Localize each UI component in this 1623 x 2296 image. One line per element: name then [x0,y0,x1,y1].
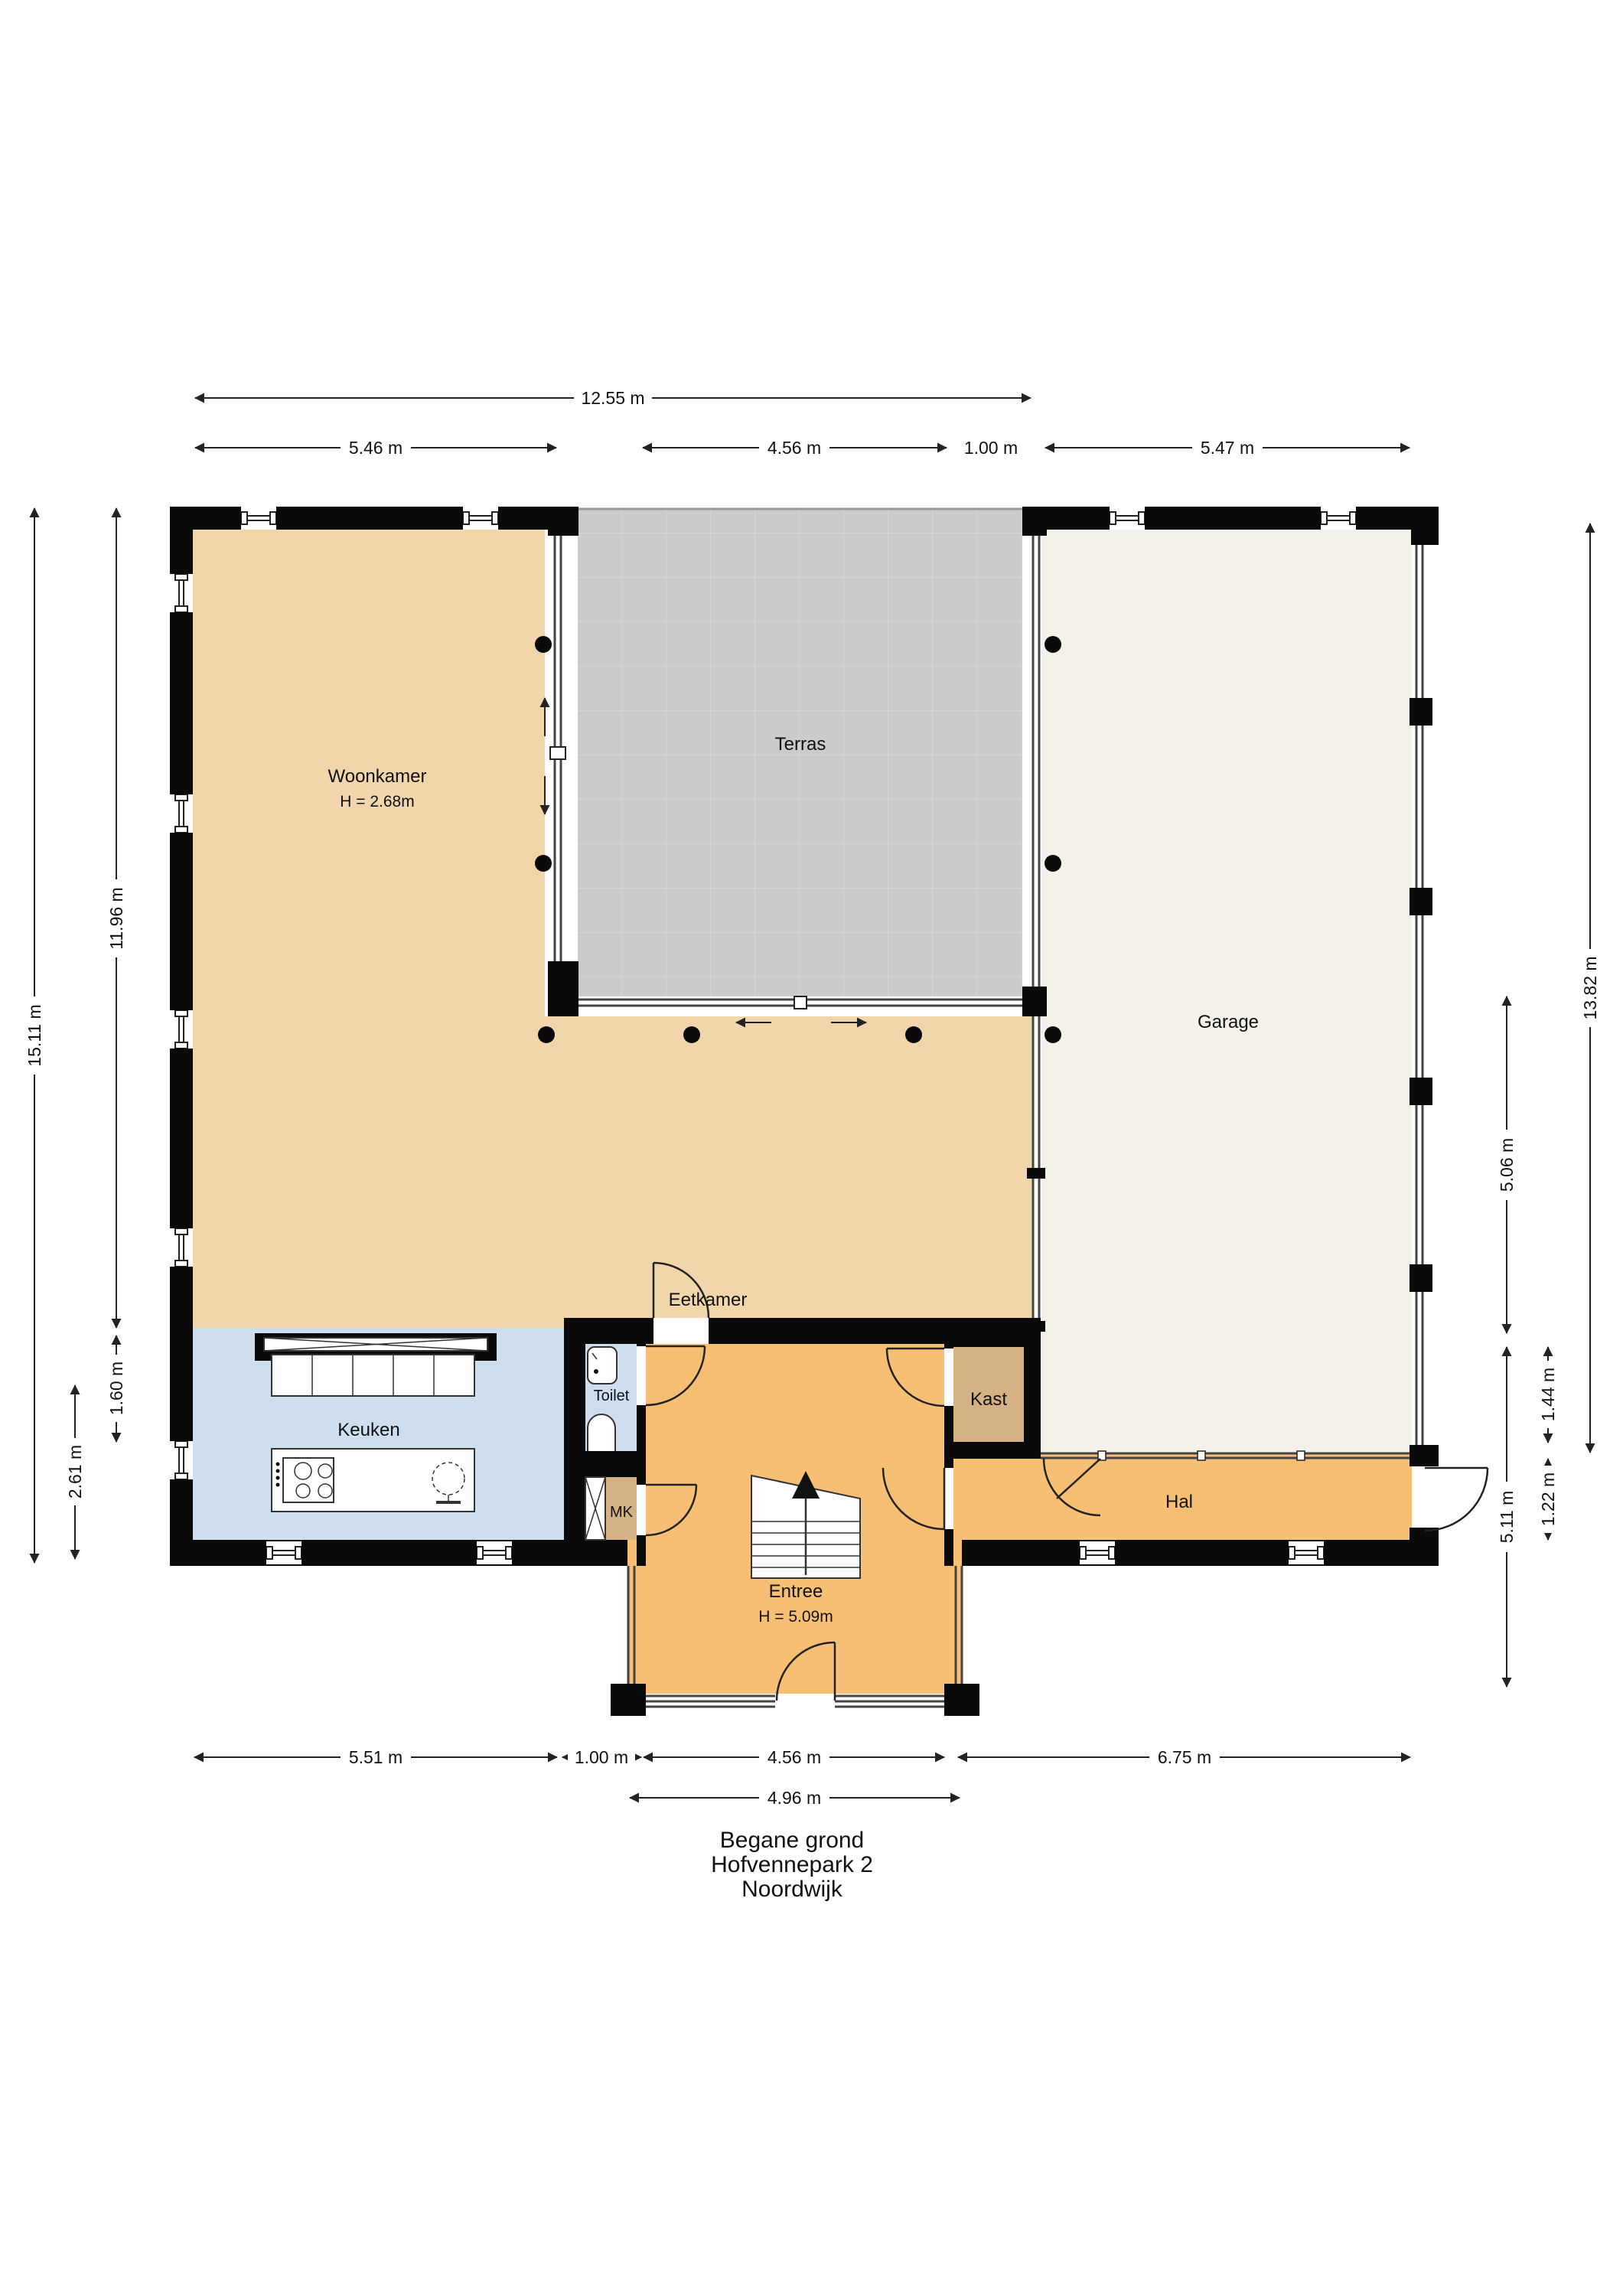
dim-left-keuken: 2.61 m [64,1385,86,1559]
svg-text:1.60 m: 1.60 m [106,1362,126,1415]
svg-text:5.06 m: 5.06 m [1497,1138,1517,1192]
knob [276,1463,280,1466]
title-city: Noordwijk [741,1877,843,1902]
wall-entree-west [637,1318,646,1346]
wall-entree-east [944,1529,953,1566]
label-garage: Garage [1198,1012,1259,1032]
column-dot [535,855,552,872]
label-eetkamer: Eetkamer [669,1290,748,1310]
label-woonkamer: Woonkamer [328,766,427,787]
dim-left-living: 11.96 m [105,508,128,1328]
glass-mullion [1027,1168,1045,1179]
label-entree-height: H = 5.09m [758,1608,833,1626]
dim-right-garage: 13.82 m [1579,523,1602,1453]
knob [276,1483,280,1487]
window-west [170,1228,193,1267]
wall-north-left [170,507,578,530]
title-address: Hofvennepark 2 [711,1852,873,1877]
dim-right-lower: 5.11 m [1495,1347,1518,1687]
washbasin [588,1347,617,1384]
window-south [1080,1541,1115,1564]
wall-pier [1410,1078,1432,1105]
knob [276,1476,280,1480]
floorplan-drawing: Woonkamer H = 2.68m Terras Garage Eetkam… [0,0,1623,2296]
window-north [463,507,498,530]
window-north [241,507,276,530]
wall-band-entree-top [709,1318,944,1344]
wall-band-kast-top [944,1318,1041,1347]
dim-right-kast: 1.44 m [1537,1347,1559,1443]
svg-text:13.82 m: 13.82 m [1580,956,1600,1019]
label-toilet: Toilet [594,1388,630,1404]
dim-top-gap: 1.00 m [957,436,1025,459]
svg-text:15.11 m: 15.11 m [24,1004,44,1066]
dim-top-terras: 4.56 m [643,436,947,459]
svg-text:5.11 m: 5.11 m [1497,1491,1517,1544]
dim-top-garage: 5.47 m [1045,436,1410,459]
label-woonkamer-height: H = 2.68m [340,793,414,810]
svg-text:1.22 m: 1.22 m [1538,1473,1558,1526]
wall-entree-east [944,1318,953,1349]
svg-text:4.96 m: 4.96 m [768,1788,821,1808]
wall-post-entree-sw [611,1684,646,1716]
wall-post-entree-se [944,1684,979,1716]
wall-post-terras-nw [548,507,578,536]
wall-post-terras-se [1022,987,1047,1016]
window-south [266,1541,301,1564]
title-block: Begane grond Hofvennepark 2 Noordwijk [711,1828,873,1902]
kitchen-island [272,1449,474,1512]
wall-kast-south [944,1442,1041,1459]
svg-text:12.55 m: 12.55 m [581,388,644,408]
window-west [170,574,193,612]
kitchen-counter [264,1338,487,1396]
dim-top-overall: 12.55 m [195,386,1031,409]
wall-pier [1410,1264,1432,1292]
svg-text:6.75 m: 6.75 m [1158,1747,1211,1767]
column-dot [1045,1026,1061,1043]
svg-text:11.96 m: 11.96 m [106,887,126,949]
wall-entree-west [637,1405,646,1485]
label-kast: Kast [970,1389,1007,1410]
dim-bottom-entree-outer: 4.96 m [630,1786,960,1809]
wall-pier [1410,888,1432,915]
label-keuken: Keuken [337,1420,399,1440]
dim-top-woonkamer: 5.46 m [195,436,556,459]
svg-text:5.51 m: 5.51 m [349,1747,402,1767]
label-terras: Terras [775,734,826,755]
column-dot [1045,636,1061,653]
wall-north-right [1022,507,1439,530]
column-dot [535,636,552,653]
dim-bottom-entree: 4.56 m [644,1746,944,1769]
svg-text:4.56 m: 4.56 m [768,1747,821,1767]
svg-text:1.00 m: 1.00 m [964,438,1018,458]
wall-hal-door-jamb [1410,1445,1439,1466]
column-dot [905,1026,922,1043]
title-floor: Begane grond [720,1828,865,1853]
mk-shaft [585,1477,605,1540]
wall-entree-west [637,1535,646,1566]
column-dot [1045,855,1061,872]
knob [276,1469,280,1473]
dim-bottom-gap: 1.00 m [562,1746,641,1769]
wall-keuken-toilet [564,1344,585,1566]
column-dot [683,1026,700,1043]
dim-bottom-hal: 6.75 m [958,1746,1410,1769]
dim-right-hal: 1.22 m [1537,1459,1559,1540]
dim-right-upper: 5.06 m [1495,996,1518,1333]
glass-junction [1198,1451,1205,1460]
floorplan-page: Woonkamer H = 2.68m Terras Garage Eetkam… [0,0,1623,2296]
wall-south-right [962,1540,1439,1566]
svg-text:5.46 m: 5.46 m [349,438,402,458]
svg-text:4.56 m: 4.56 m [768,438,821,458]
wall-south-left [170,1540,627,1566]
wall-post-terras-sw [548,961,578,1016]
label-entree: Entree [769,1581,823,1602]
svg-text:1.00 m: 1.00 m [575,1747,628,1767]
svg-text:2.61 m: 2.61 m [65,1445,85,1499]
room-garage-floor [1041,530,1412,1453]
wall-corner-ne [1411,507,1439,545]
glass-junction [794,996,807,1009]
door-hal-exterior [1425,1468,1488,1531]
svg-text:5.47 m: 5.47 m [1201,438,1254,458]
window-west [170,794,193,833]
column-dot [538,1026,555,1043]
window-north [1110,507,1145,530]
window-south [1289,1541,1324,1564]
window-south [477,1541,512,1564]
label-mk: MK [610,1504,634,1521]
wall-hal-door-jamb [1410,1528,1439,1566]
toilet-bowl [588,1414,615,1451]
glass-junction [550,747,565,759]
wall-pier [1410,698,1432,726]
window-west [170,1441,193,1479]
dim-left-overall: 15.11 m [23,508,46,1563]
window-west [170,1010,193,1049]
dim-bottom-keuken: 5.51 m [194,1746,557,1769]
window-north [1321,507,1356,530]
dim-left-counter: 1.60 m [105,1336,128,1442]
svg-text:1.44 m: 1.44 m [1538,1368,1558,1421]
glass-junction [1297,1451,1305,1460]
label-hal: Hal [1165,1492,1193,1512]
